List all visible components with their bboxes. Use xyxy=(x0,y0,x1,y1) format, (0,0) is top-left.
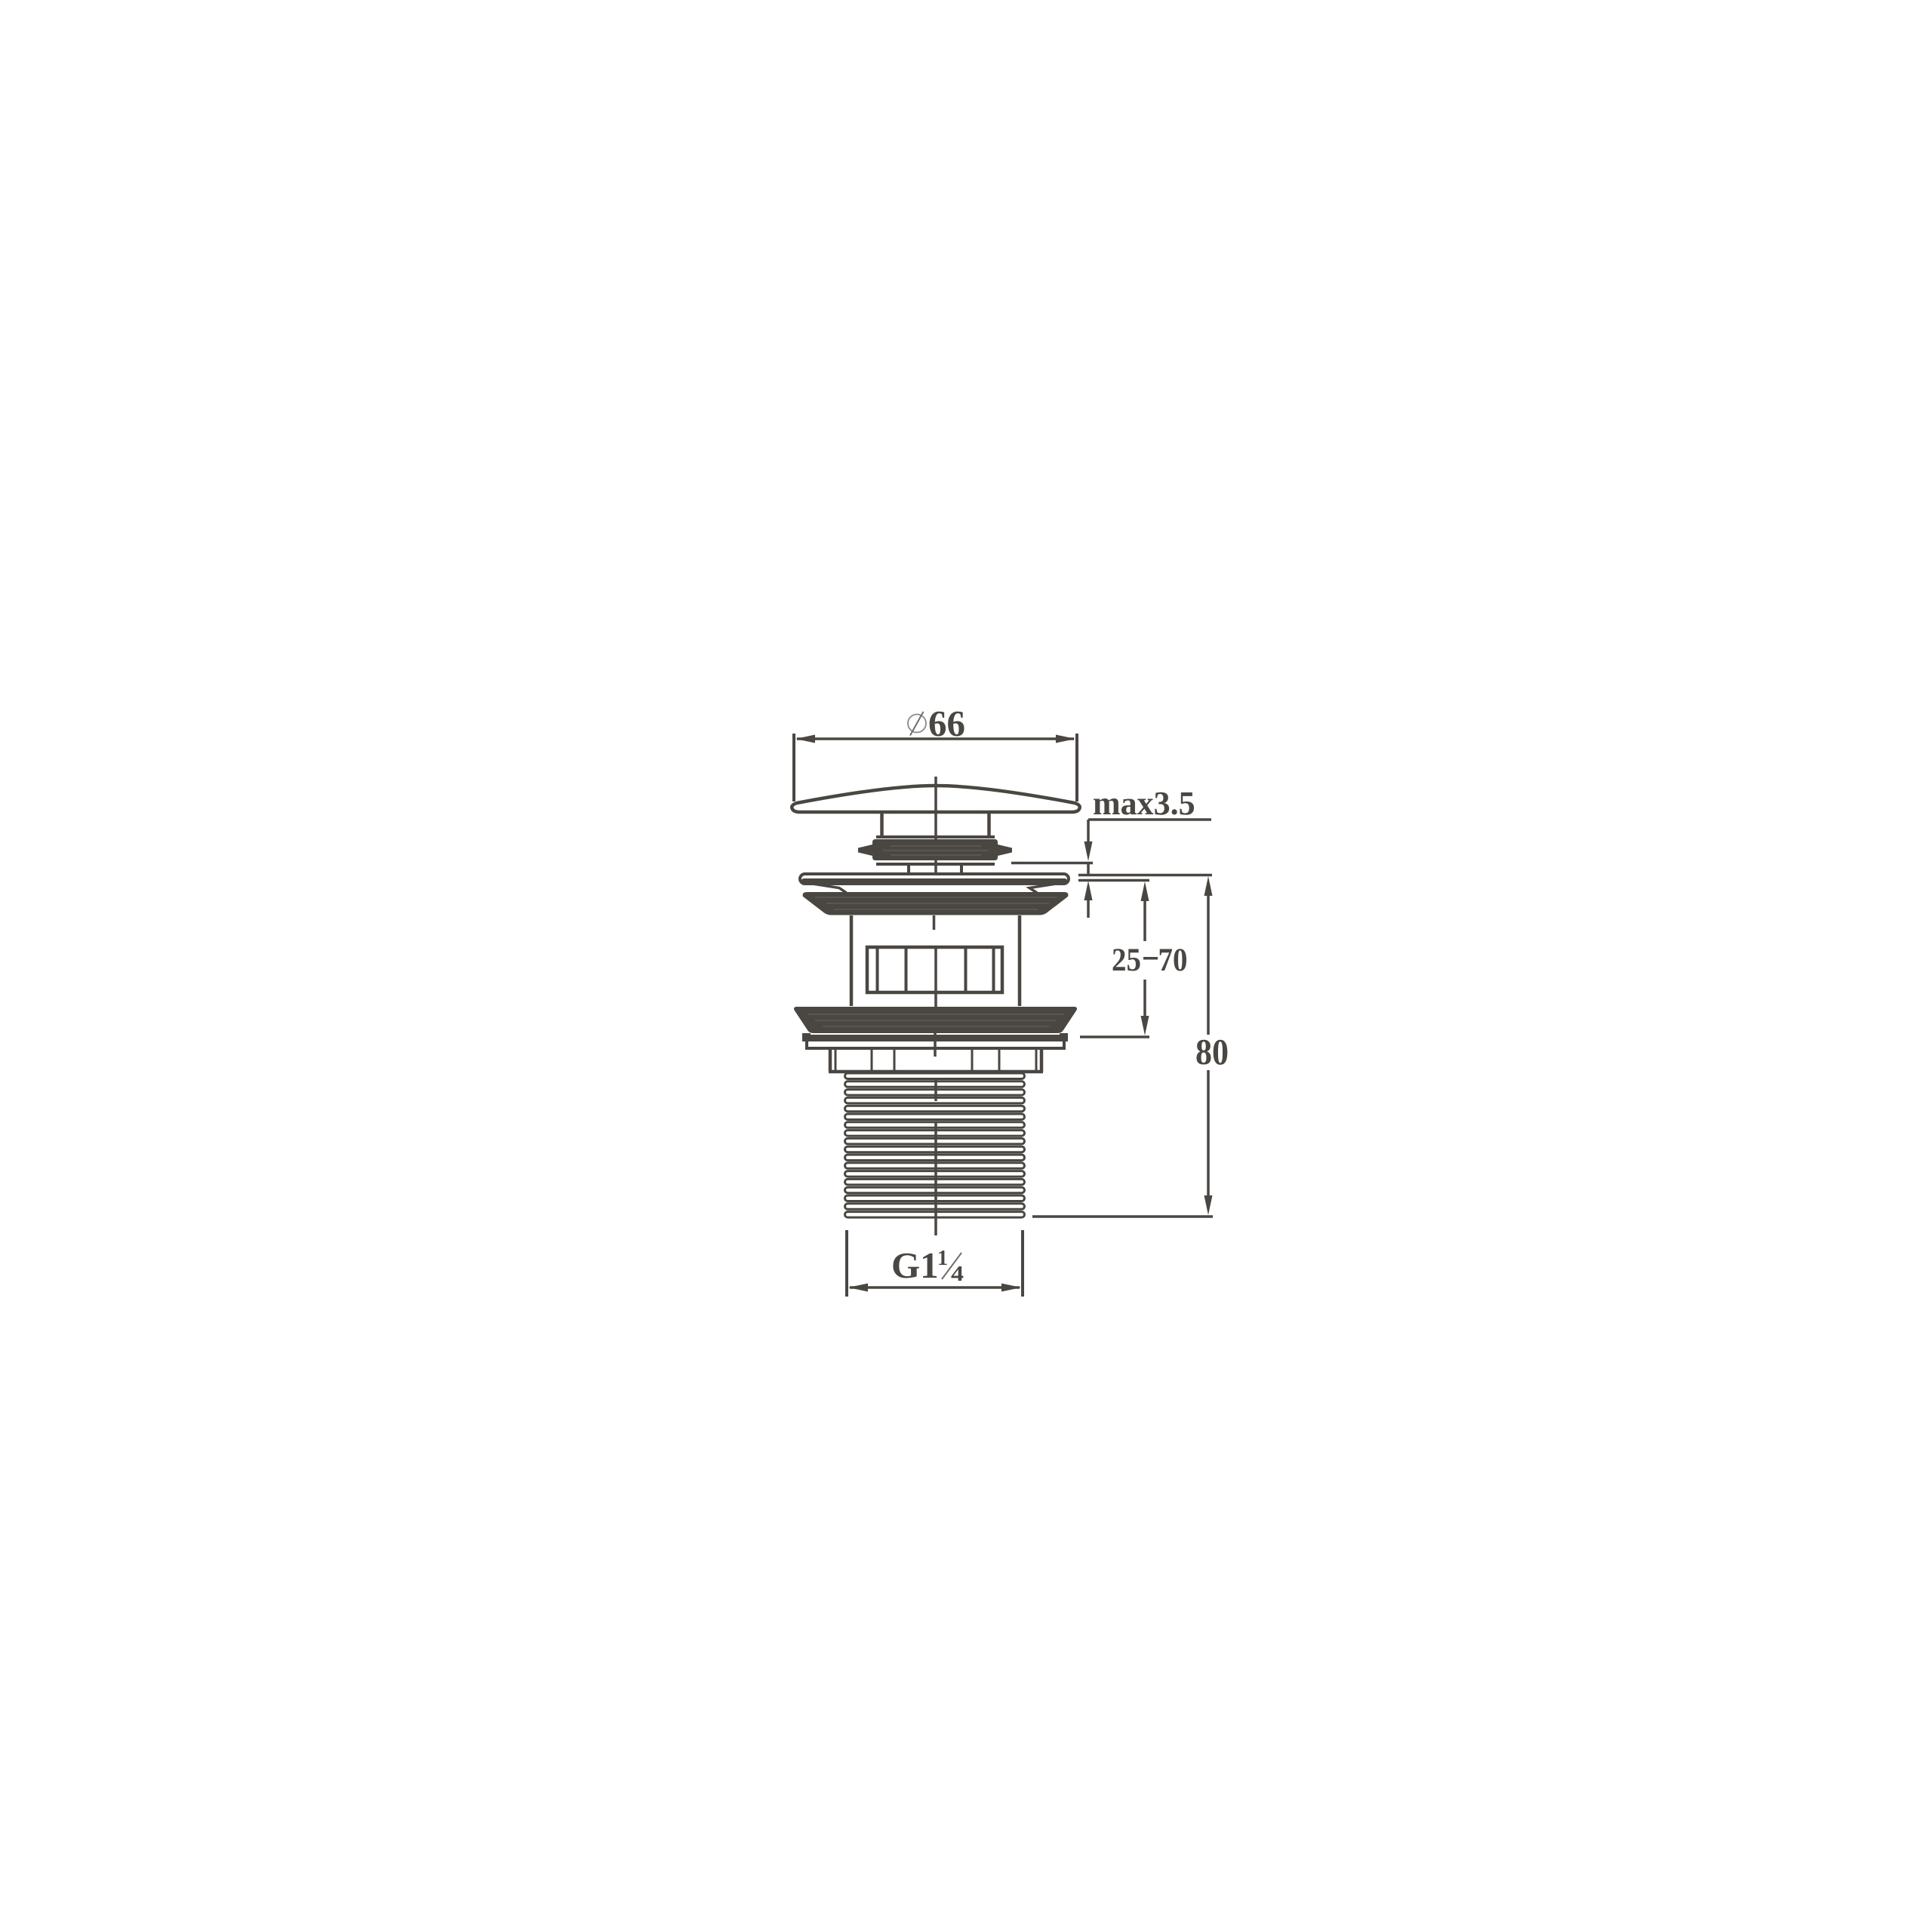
svg-text:4: 4 xyxy=(951,1262,964,1286)
svg-text:80: 80 xyxy=(1195,1031,1229,1072)
svg-text:G1: G1 xyxy=(891,1244,939,1286)
svg-text:25: 25 xyxy=(1112,943,1141,978)
svg-text:max3.5: max3.5 xyxy=(1093,785,1195,822)
svg-text:1: 1 xyxy=(937,1247,948,1270)
svg-text:70: 70 xyxy=(1158,943,1188,978)
svg-text:66: 66 xyxy=(928,703,965,744)
